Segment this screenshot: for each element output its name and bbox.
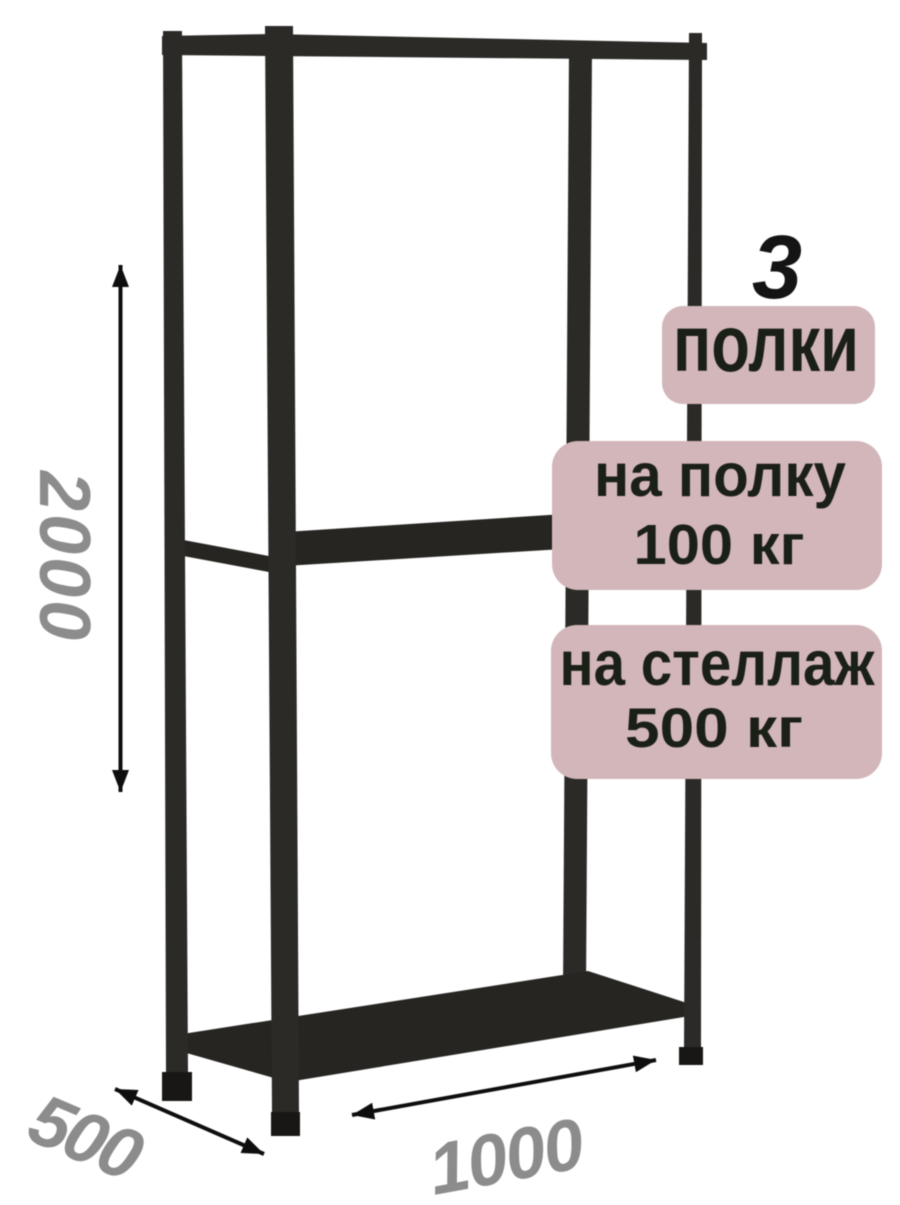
svg-text:на полку: на полку	[594, 441, 846, 509]
svg-text:на стеллаж: на стеллаж	[560, 629, 876, 699]
svg-text:100 кг: 100 кг	[634, 513, 805, 577]
svg-text:полки: полки	[673, 299, 859, 388]
svg-text:500 кг: 500 кг	[625, 696, 803, 759]
